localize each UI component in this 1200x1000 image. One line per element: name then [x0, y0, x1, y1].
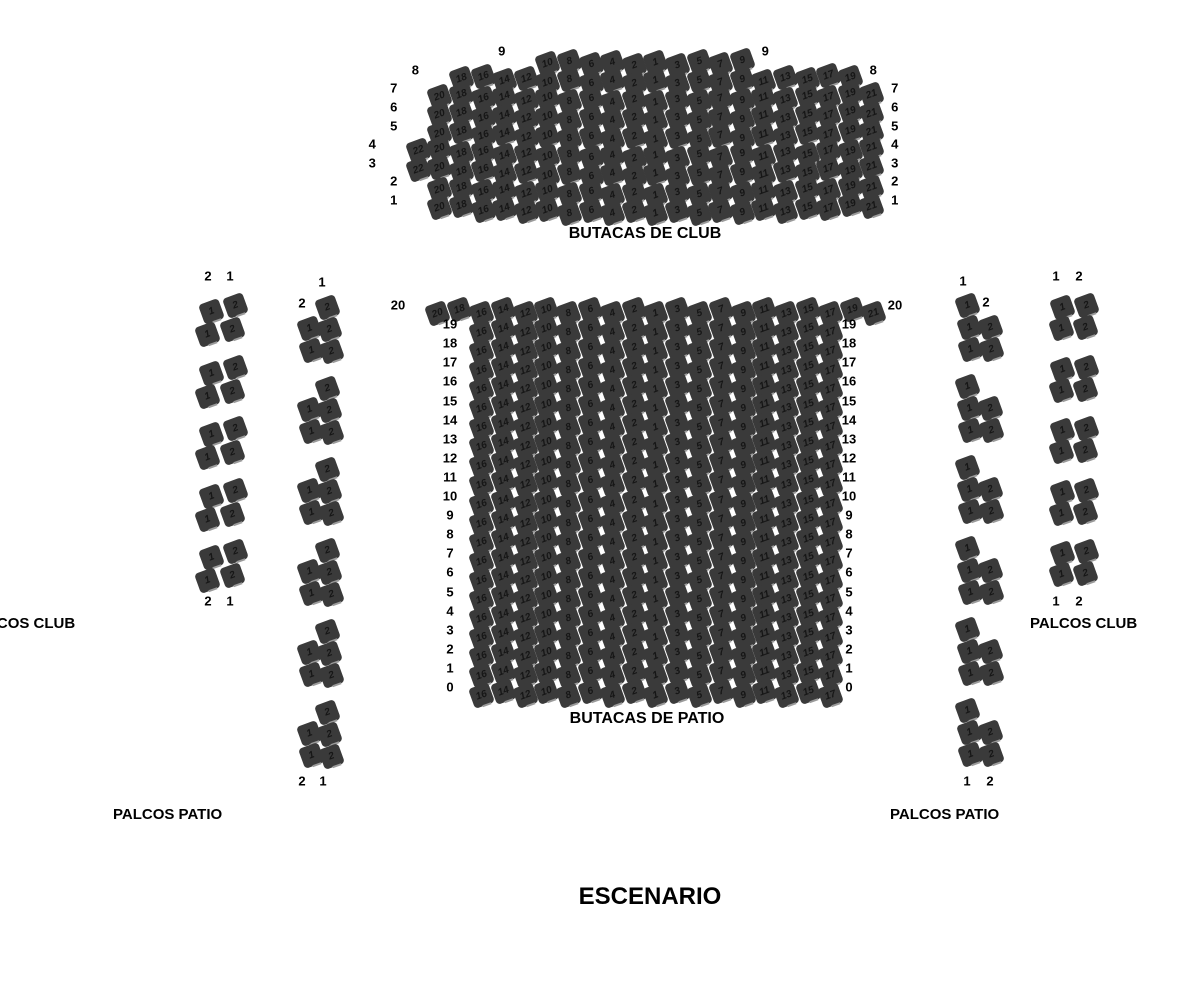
patio_left-seat[interactable]: 2 — [314, 537, 341, 564]
seat-number: 3 — [673, 685, 682, 696]
club_right-seat[interactable]: 2 — [1072, 376, 1099, 403]
seat-number: 7 — [716, 93, 725, 104]
seat-number: 12 — [519, 187, 533, 200]
seat-number: 17 — [822, 184, 836, 197]
seat-number: 3 — [673, 59, 682, 70]
patio_right-seat[interactable]: 1 — [954, 454, 981, 481]
seat-number: 16 — [475, 421, 489, 434]
patio-row-label-left-17: 17 — [443, 355, 457, 370]
seat-number: 13 — [778, 71, 792, 84]
seat-number: 15 — [802, 398, 816, 411]
seat-number: 2 — [327, 589, 336, 600]
seat-number: 6 — [587, 152, 596, 163]
seat-number: 3 — [673, 552, 682, 563]
seat-number: 2 — [228, 385, 237, 396]
seat-number: 1 — [1058, 425, 1067, 436]
seat-number: 8 — [564, 441, 573, 452]
seat-number: 16 — [475, 593, 489, 606]
seat-number: 16 — [475, 555, 489, 568]
seat-number: 18 — [454, 199, 468, 212]
seat-number: 6 — [586, 322, 595, 333]
seat-number: 2 — [987, 506, 996, 517]
seat-number: 3 — [673, 187, 682, 198]
patio_right-seat[interactable]: 2 — [977, 476, 1004, 503]
seat-number: 1 — [207, 306, 216, 317]
seat-number: 15 — [802, 512, 816, 525]
seat-number: 1 — [305, 485, 314, 496]
patio-seat[interactable]: 21 — [860, 300, 887, 327]
seat-number: 14 — [496, 608, 510, 621]
seat-number: 1 — [651, 97, 660, 108]
seat-number: 4 — [608, 517, 617, 528]
club_right-seat[interactable]: 1 — [1048, 315, 1075, 342]
seat-number: 1 — [652, 517, 661, 528]
patio_right-seat[interactable]: 1 — [954, 616, 981, 643]
patio_left-seat[interactable]: 2 — [314, 456, 341, 483]
seat-number: 10 — [541, 57, 555, 70]
seat-number: 6 — [586, 685, 595, 696]
seat-number: 1 — [963, 381, 972, 392]
seat-number: 2 — [630, 94, 639, 105]
patio_left-header-label-1: 1 — [318, 275, 325, 290]
seat-number: 16 — [476, 163, 490, 176]
seat-number: 8 — [564, 575, 573, 586]
seat-number: 16 — [475, 345, 489, 358]
seat-number: 2 — [1081, 383, 1090, 394]
seat-number: 4 — [608, 651, 617, 662]
club_right-seat[interactable]: 2 — [1072, 437, 1099, 464]
seat-number: 1 — [651, 208, 660, 219]
club_right-seat[interactable]: 2 — [1073, 354, 1100, 381]
patio-row-label-right-1: 1 — [845, 660, 852, 675]
seat-number: 6 — [586, 609, 595, 620]
seat-number: 2 — [630, 131, 639, 142]
seat-number: 1 — [966, 749, 975, 760]
seat-number: 2 — [1082, 300, 1091, 311]
seat-number: 17 — [822, 202, 836, 215]
seat-number: 2 — [987, 587, 996, 598]
seat-number: 1 — [1057, 384, 1066, 395]
seat-number: 9 — [739, 537, 748, 548]
seat-number: 4 — [608, 56, 617, 67]
seat-number: 1 — [307, 426, 316, 437]
patio-row-label-left-18: 18 — [443, 336, 457, 351]
seat-number: 15 — [802, 570, 816, 583]
seat-number: 15 — [802, 608, 816, 621]
patio_right-seat[interactable]: 2 — [977, 395, 1004, 422]
seat-number: 2 — [1082, 423, 1091, 434]
seat-number: 3 — [673, 456, 682, 467]
seat-number: 6 — [586, 399, 595, 410]
patio_right-seat[interactable]: 2 — [978, 741, 1005, 768]
seat-number: 4 — [608, 384, 617, 395]
seat-number: 4 — [608, 479, 617, 490]
patio_left-seat[interactable]: 2 — [316, 478, 343, 505]
seat-number: 6 — [586, 571, 595, 582]
seat-number: 8 — [565, 114, 574, 125]
seat-number: 10 — [541, 129, 555, 142]
seat-number: 3 — [673, 152, 682, 163]
seat-number: 1 — [966, 668, 975, 679]
patio_right-seat[interactable]: 2 — [977, 719, 1004, 746]
seat-number: 2 — [327, 346, 336, 357]
seat-number: 14 — [498, 149, 512, 162]
club_right-seat[interactable]: 2 — [1072, 499, 1099, 526]
seat-number: 14 — [496, 589, 510, 602]
seat-number: 13 — [778, 146, 792, 159]
seat-number: 2 — [630, 322, 639, 333]
seat-number: 6 — [587, 93, 596, 104]
seat-number: 1 — [963, 705, 972, 716]
seat-number: 16 — [475, 612, 489, 625]
seat-number: 6 — [586, 303, 595, 314]
patio_left-seat[interactable]: 2 — [316, 559, 343, 586]
patio_left-seat[interactable]: 2 — [318, 419, 345, 446]
seat-number: 12 — [518, 364, 532, 377]
seat-number: 2 — [630, 60, 639, 71]
seat-number: 2 — [327, 751, 336, 762]
seat-number: 1 — [307, 345, 316, 356]
patio_right-seat[interactable]: 2 — [977, 557, 1004, 584]
seat-number: 12 — [518, 593, 532, 606]
seat-number: 7 — [717, 513, 726, 524]
patio_left-seat[interactable]: 2 — [316, 397, 343, 424]
seat-number: 7 — [717, 322, 726, 333]
patio_left-footer-label-2: 2 — [298, 774, 305, 789]
seat-number: 12 — [518, 574, 532, 587]
seat-number: 11 — [758, 436, 771, 449]
seat-number: 4 — [608, 670, 617, 681]
seat-number: 1 — [652, 575, 661, 586]
club_left-seat[interactable]: 2 — [222, 354, 249, 381]
seat-number: 8 — [564, 365, 573, 376]
palcos-club-right-label: PALCOS CLUB — [1030, 615, 1137, 632]
seat-number: 1 — [652, 479, 661, 490]
seat-number: 1 — [207, 552, 216, 563]
seat-number: 4 — [608, 632, 617, 643]
seat-number: 1 — [203, 513, 212, 524]
seat-number: 7 — [717, 437, 726, 448]
patio_left-seat[interactable]: 2 — [314, 618, 341, 645]
seat-number: 16 — [475, 306, 489, 319]
patio_left-seat[interactable]: 2 — [314, 699, 341, 726]
patio_right-seat[interactable]: 2 — [978, 660, 1005, 687]
club_left-seat[interactable]: 1 — [194, 444, 221, 471]
seat-number: 13 — [780, 688, 794, 701]
seat-number: 3 — [673, 628, 682, 639]
seat-number: 10 — [540, 570, 554, 583]
seat-number: 13 — [780, 650, 794, 663]
patio_right-seat[interactable]: 2 — [977, 638, 1004, 665]
seat-number: 12 — [519, 94, 533, 107]
seat-number: 2 — [1082, 361, 1091, 372]
club_left-seat[interactable]: 2 — [219, 316, 246, 343]
seat-number: 11 — [758, 455, 771, 468]
theater-seat-map: 1086421357999181614121086421357911131517… — [0, 0, 1200, 1000]
seat-number: 7 — [716, 152, 725, 163]
patio_left-seat[interactable]: 2 — [318, 338, 345, 365]
seat-number: 16 — [476, 70, 490, 83]
club_left-seat[interactable]: 2 — [219, 378, 246, 405]
seat-number: 2 — [630, 456, 639, 467]
seat-number: 1 — [652, 613, 661, 624]
club_left-seat[interactable]: 1 — [194, 506, 221, 533]
seat-number: 2 — [630, 571, 639, 582]
club_left-seat[interactable]: 2 — [222, 292, 249, 319]
seat-number: 12 — [518, 402, 532, 415]
seat-number: 21 — [865, 107, 879, 120]
club_right-seat[interactable]: 1 — [1048, 500, 1075, 527]
seat-number: 2 — [987, 344, 996, 355]
seat-number: 11 — [758, 551, 771, 564]
seat-number: 17 — [823, 612, 837, 625]
seat-number: 17 — [823, 593, 837, 606]
patio_left-footer-label-1: 1 — [319, 774, 326, 789]
seat-number: 5 — [695, 460, 704, 471]
seat-number: 2 — [630, 399, 639, 410]
patio-seat[interactable]: 17 — [817, 682, 844, 709]
seat-number: 2 — [630, 380, 639, 391]
seat-number: 5 — [695, 326, 704, 337]
patio_left-seat[interactable]: 2 — [314, 294, 341, 321]
patio_right-seat[interactable]: 2 — [977, 314, 1004, 341]
seat-number: 1 — [651, 190, 660, 201]
patio-row-label-right-0: 0 — [845, 680, 852, 695]
seat-number: 6 — [587, 205, 596, 216]
seat-number: 11 — [757, 109, 770, 122]
seat-number: 17 — [823, 631, 837, 644]
patio-row-label-left-19: 19 — [443, 317, 457, 332]
seat-number: 15 — [802, 302, 816, 315]
patio_left-seat[interactable]: 2 — [316, 640, 343, 667]
seat-number: 5 — [695, 75, 704, 86]
seat-number: 11 — [758, 417, 771, 430]
seat-number: 1 — [652, 632, 661, 643]
seat-number: 11 — [758, 303, 771, 316]
seat-number: 4 — [608, 556, 617, 567]
club_left-seat[interactable]: 2 — [219, 562, 246, 589]
seat-number: 5 — [695, 479, 704, 490]
seat-number: 16 — [475, 631, 489, 644]
seat-number: 17 — [822, 144, 836, 157]
seat-number: 7 — [717, 647, 726, 658]
seat-number: 10 — [540, 455, 554, 468]
seat-number: 10 — [540, 302, 554, 315]
patio-row-label-left-11: 11 — [443, 469, 457, 484]
club_right-seat[interactable]: 1 — [1048, 377, 1075, 404]
club_right-seat[interactable]: 2 — [1072, 560, 1099, 587]
patio_left-seat[interactable]: 2 — [316, 721, 343, 748]
seat-number: 8 — [565, 149, 574, 160]
seat-number: 14 — [496, 417, 510, 430]
club-row-label-right-9: 9 — [762, 44, 769, 59]
seat-number: 5 — [695, 403, 704, 414]
club_left-seat[interactable]: 1 — [194, 321, 221, 348]
patio_right-seat[interactable]: 1 — [954, 535, 981, 562]
club-row-label-right-2: 2 — [891, 174, 898, 189]
seat-number: 7 — [717, 342, 726, 353]
club_right-seat[interactable]: 2 — [1073, 477, 1100, 504]
seat-number: 5 — [695, 208, 704, 219]
seat-number: 2 — [1081, 322, 1090, 333]
seat-number: 20 — [433, 108, 447, 121]
seat-number: 10 — [540, 665, 554, 678]
seat-number: 16 — [475, 497, 489, 510]
patio_left-seat[interactable]: 2 — [318, 500, 345, 527]
seat-number: 13 — [780, 364, 794, 377]
seat-number: 11 — [758, 532, 771, 545]
seat-number: 21 — [865, 181, 879, 194]
seat-number: 7 — [717, 494, 726, 505]
seat-number: 4 — [608, 307, 617, 318]
seat-number: 10 — [540, 360, 554, 373]
club_left-seat[interactable]: 2 — [222, 477, 249, 504]
seat-number: 15 — [802, 341, 816, 354]
seat-number: 4 — [608, 441, 617, 452]
patio_right-seat[interactable]: 1 — [954, 292, 981, 319]
seat-number: 2 — [630, 494, 639, 505]
seat-number: 3 — [673, 647, 682, 658]
patio-row-label-right-5: 5 — [845, 584, 852, 599]
patio_left-seat[interactable]: 2 — [318, 662, 345, 689]
seat-number: 17 — [823, 516, 837, 529]
patio_right-seat[interactable]: 2 — [978, 498, 1005, 525]
seat-number: 10 — [540, 417, 554, 430]
seat-number: 8 — [564, 422, 573, 433]
patio_right-seat[interactable]: 2 — [978, 417, 1005, 444]
club_left-seat[interactable]: 1 — [198, 483, 225, 510]
club_right-seat[interactable]: 1 — [1048, 438, 1075, 465]
seat-number: 13 — [780, 421, 794, 434]
patio-row-label-right-17: 17 — [842, 355, 856, 370]
patio_left-seat[interactable]: 2 — [316, 316, 343, 343]
seat-number: 5 — [695, 670, 704, 681]
seat-number: 12 — [519, 165, 533, 178]
patio-row-label-left-6: 6 — [446, 565, 453, 580]
seat-number: 12 — [518, 306, 532, 319]
seat-number: 6 — [587, 59, 596, 70]
seat-number: 9 — [739, 498, 748, 509]
patio-row-label-right-20: 20 — [888, 298, 902, 313]
club_left-seat[interactable]: 2 — [222, 538, 249, 565]
seat-number: 13 — [780, 402, 794, 415]
seat-number: 4 — [608, 346, 617, 357]
seat-number: 5 — [695, 346, 704, 357]
seat-number: 2 — [987, 749, 996, 760]
patio-row-label-right-4: 4 — [845, 603, 852, 618]
seat-number: 5 — [695, 189, 704, 200]
club-seat[interactable]: 21 — [858, 193, 885, 220]
club_left-seat[interactable]: 1 — [198, 360, 225, 387]
seat-number: 7 — [716, 59, 725, 70]
patio_left-seat[interactable]: 2 — [318, 581, 345, 608]
seat-number: 2 — [1081, 568, 1090, 579]
seat-number: 4 — [608, 537, 617, 548]
patio_right-seat[interactable]: 2 — [978, 336, 1005, 363]
seat-number: 7 — [717, 361, 726, 372]
seat-number: 2 — [323, 707, 332, 718]
patio_left-seat[interactable]: 2 — [314, 375, 341, 402]
club_left-seat[interactable]: 1 — [194, 383, 221, 410]
seat-number: 1 — [1058, 548, 1067, 559]
seat-number: 12 — [518, 421, 532, 434]
seat-number: 3 — [673, 94, 682, 105]
seat-number: 3 — [673, 571, 682, 582]
seat-number: 1 — [652, 498, 661, 509]
patio_right-footer-label-2: 2 — [986, 774, 993, 789]
seat-number: 15 — [802, 321, 816, 334]
club_right-header-label-1: 1 — [1052, 269, 1059, 284]
club_right-seat[interactable]: 2 — [1072, 314, 1099, 341]
seat-number: 12 — [518, 650, 532, 663]
seat-number: 11 — [758, 570, 771, 583]
patio_left-seat[interactable]: 2 — [318, 743, 345, 770]
seat-number: 2 — [323, 626, 332, 637]
seat-number: 2 — [986, 322, 995, 333]
seat-number: 1 — [307, 750, 316, 761]
seat-number: 2 — [630, 533, 639, 544]
patio_right-seat[interactable]: 1 — [954, 373, 981, 400]
seat-number: 10 — [540, 493, 554, 506]
seat-number: 10 — [541, 184, 555, 197]
seat-number: 2 — [228, 324, 237, 335]
seat-number: 9 — [739, 365, 748, 376]
seat-number: 16 — [475, 383, 489, 396]
seat-number: 3 — [673, 494, 682, 505]
seat-number: 1 — [305, 404, 314, 415]
seat-number: 8 — [565, 167, 574, 178]
seat-number: 1 — [965, 403, 974, 414]
seat-number: 3 — [673, 513, 682, 524]
patio_right-seat[interactable]: 2 — [978, 579, 1005, 606]
seat-number: 9 — [739, 384, 748, 395]
seat-number: 8 — [564, 498, 573, 509]
seat-number: 7 — [717, 571, 726, 582]
seat-number: 12 — [518, 688, 532, 701]
seat-number: 7 — [717, 380, 726, 391]
seat-number: 2 — [323, 302, 332, 313]
club_left-seat[interactable]: 2 — [219, 439, 246, 466]
seat-number: 2 — [630, 303, 639, 314]
seat-number: 19 — [843, 198, 857, 211]
club_left-seat[interactable]: 2 — [219, 501, 246, 528]
seat-number: 18 — [453, 302, 467, 315]
seat-number: 11 — [758, 589, 771, 602]
seat-number: 2 — [630, 153, 639, 164]
seat-number: 11 — [758, 513, 771, 526]
seat-number: 10 — [540, 512, 554, 525]
patio_right-footer-label-1: 1 — [963, 774, 970, 789]
seat-number: 1 — [652, 460, 661, 471]
seat-number: 12 — [518, 555, 532, 568]
patio-row-label-left-3: 3 — [446, 622, 453, 637]
club_left-seat[interactable]: 2 — [222, 415, 249, 442]
seat-number: 21 — [865, 200, 879, 213]
seat-number: 12 — [518, 325, 532, 338]
patio-row-label-right-3: 3 — [845, 622, 852, 637]
seat-number: 16 — [475, 536, 489, 549]
seat-number: 5 — [695, 422, 704, 433]
patio_right-seat[interactable]: 1 — [954, 697, 981, 724]
seat-number: 6 — [586, 456, 595, 467]
club_left-seat[interactable]: 1 — [194, 567, 221, 594]
seat-number: 17 — [822, 69, 836, 82]
seat-number: 15 — [802, 646, 816, 659]
seat-number: 1 — [305, 566, 314, 577]
club_right-seat[interactable]: 1 — [1048, 561, 1075, 588]
seat-number: 3 — [673, 418, 682, 429]
seat-number: 5 — [695, 651, 704, 662]
